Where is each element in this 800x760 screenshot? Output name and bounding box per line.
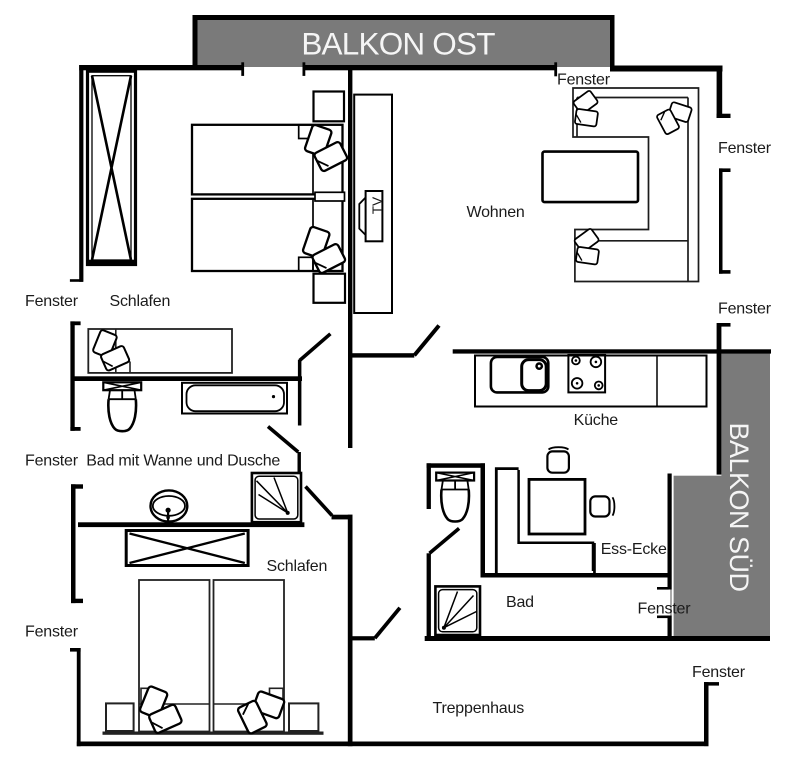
svg-text:Fenster: Fenster	[692, 664, 746, 681]
svg-text:Fenster: Fenster	[25, 293, 79, 310]
svg-text:Fenster: Fenster	[25, 624, 79, 641]
svg-text:Wohnen: Wohnen	[467, 204, 525, 221]
svg-text:Fenster: Fenster	[718, 140, 772, 157]
svg-text:Bad: Bad	[506, 594, 534, 611]
svg-text:Fenster: Fenster	[718, 301, 772, 318]
svg-text:Bad mit Wanne und Dusche: Bad mit Wanne und Dusche	[86, 452, 280, 469]
svg-text:Fenster: Fenster	[557, 72, 611, 89]
svg-text:TV: TV	[370, 197, 385, 214]
svg-text:BALKON OST: BALKON OST	[301, 26, 495, 62]
svg-text:BALKON SÜD: BALKON SÜD	[724, 422, 754, 591]
svg-text:Schlafen: Schlafen	[267, 558, 328, 575]
svg-text:Schlafen: Schlafen	[110, 293, 171, 310]
svg-text:Fenster: Fenster	[638, 601, 692, 618]
svg-text:Ess-Ecke: Ess-Ecke	[601, 541, 667, 558]
svg-text:Fenster: Fenster	[25, 452, 79, 469]
svg-text:Küche: Küche	[574, 412, 619, 429]
svg-text:Treppenhaus: Treppenhaus	[433, 700, 525, 717]
